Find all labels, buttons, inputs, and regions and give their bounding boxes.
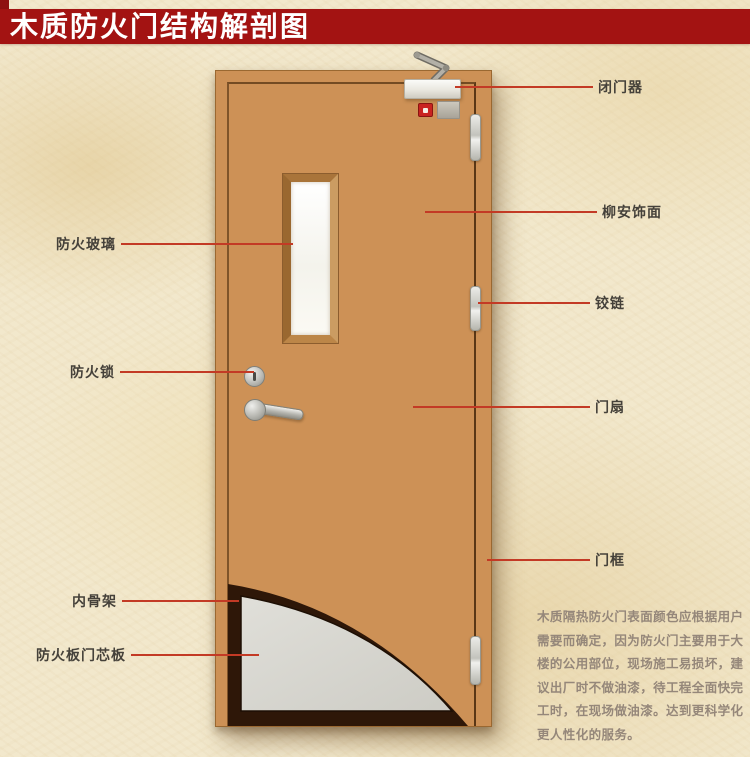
callout-fire-glass: 防火玻璃: [56, 234, 293, 254]
core-board-leader-line: [131, 654, 259, 656]
hinge-label: 铰链: [595, 293, 625, 313]
hinge-leader-line: [478, 302, 590, 304]
fire-lock-leader-line: [120, 371, 254, 373]
callout-door-closer: 闭门器: [455, 77, 643, 97]
fire-glass-leader-line: [121, 243, 293, 245]
description-line: 工时，在现场做油漆。达到更科学化: [537, 700, 749, 724]
description-line: 议出厂时不做油漆，待工程全面快完: [537, 677, 749, 701]
door-leaf-leader-line: [413, 406, 590, 408]
description-line: 更人性化的服务。: [537, 724, 749, 748]
door-frame-label: 门框: [595, 550, 625, 570]
corner-red-chip: [0, 0, 9, 9]
veneer-leader-line: [425, 211, 597, 213]
door-frame-leader-line: [487, 559, 590, 561]
door-closer-label: 闭门器: [598, 77, 643, 97]
description-line: 木质隔热防火门表面颜色应根据用户: [537, 606, 749, 630]
inner-skeleton-leader-line: [122, 600, 239, 602]
alarm-indicator-dot: [423, 108, 428, 113]
door-closer-leader-line: [455, 86, 593, 88]
title-banner: 木质防火门结构解剖图: [0, 9, 750, 44]
callout-fire-lock: 防火锁: [70, 362, 254, 382]
door-closer-body: [404, 79, 461, 99]
mounting-plate: [437, 101, 460, 119]
hinge-top: [470, 114, 481, 161]
callout-door-leaf: 门扇: [413, 397, 625, 417]
core-board-label: 防火板门芯板: [36, 645, 126, 665]
callout-inner-skeleton: 内骨架: [72, 591, 239, 611]
description-line: 楼的公用部位，现场施工易损坏，建: [537, 653, 749, 677]
fire-glass-window: [283, 174, 338, 343]
fire-lock-label: 防火锁: [70, 362, 115, 382]
core-board-shape: [241, 596, 452, 711]
callout-hinge: 铰链: [478, 293, 625, 313]
alarm-indicator-light: [418, 103, 433, 117]
door-leaf-label: 门扇: [595, 397, 625, 417]
callout-door-frame: 门框: [487, 550, 625, 570]
door-handle-rosette: [244, 399, 266, 421]
product-description: 木质隔热防火门表面颜色应根据用户 需要而确定，因为防火门主要用于大 楼的公用部位…: [537, 606, 749, 747]
callout-veneer: 柳安饰面: [425, 202, 662, 222]
description-line: 需要而确定，因为防火门主要用于大: [537, 630, 749, 654]
veneer-label: 柳安饰面: [602, 202, 662, 222]
fire-glass-label: 防火玻璃: [56, 234, 116, 254]
inner-skeleton-label: 内骨架: [72, 591, 117, 611]
page-title: 木质防火门结构解剖图: [0, 13, 310, 41]
callout-core-board: 防火板门芯板: [36, 645, 259, 665]
